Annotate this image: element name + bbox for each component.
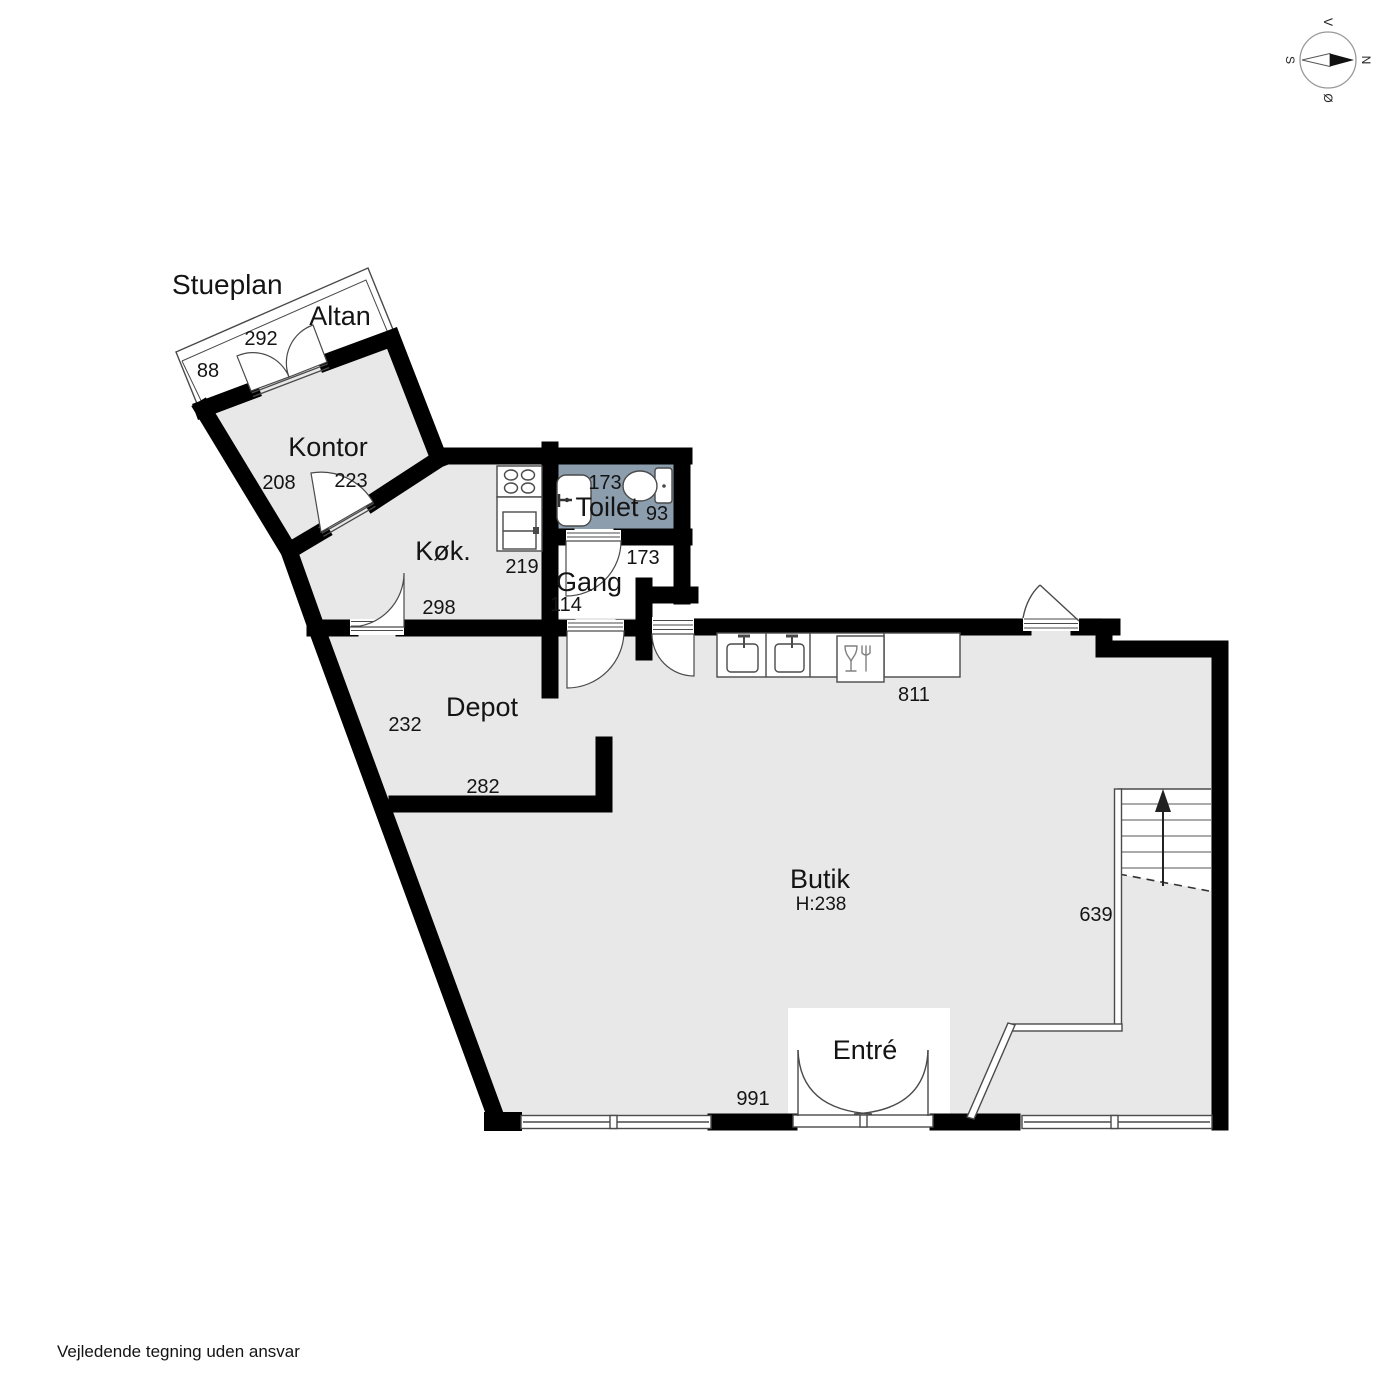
altan-dim-width: 292 xyxy=(244,328,277,350)
kitchen-unit xyxy=(497,497,542,551)
gang-dim-b: 173 xyxy=(626,547,659,569)
kontor-dim-b: 223 xyxy=(334,470,367,492)
kok-label: Køk. xyxy=(415,536,471,566)
altan-label: Altan xyxy=(309,301,371,331)
depot-dim-a: 232 xyxy=(388,714,421,736)
stove xyxy=(497,466,542,497)
depot-label: Depot xyxy=(446,692,519,722)
wc-cistern-button xyxy=(662,484,666,488)
stair-rail xyxy=(1115,789,1122,1030)
butik-label: Butik xyxy=(790,864,851,894)
south-window-left-mullion xyxy=(610,1116,617,1129)
compass-east: Ø xyxy=(1321,93,1335,102)
kontor-label: Kontor xyxy=(288,432,368,462)
altan-dim-depth: 88 xyxy=(197,360,219,382)
north-door-swing xyxy=(1023,585,1040,618)
toilet-dim-b: 93 xyxy=(646,503,668,525)
compass: V N Ø S xyxy=(1283,18,1373,103)
toilet-label: Toilet xyxy=(575,492,639,522)
floorplan-drawing: Stueplan Altan 292 88 Kontor 208 223 Køk… xyxy=(0,0,1400,1400)
compass-south: S xyxy=(1283,56,1297,64)
kok-dim-b: 298 xyxy=(422,597,455,619)
toilet-tap-knob xyxy=(565,498,569,502)
butik-height-note: H:238 xyxy=(796,894,847,915)
toilet-dim-a: 173 xyxy=(588,472,621,494)
kok-dim-a: 219 xyxy=(505,556,538,578)
kontor-dim-a: 208 xyxy=(262,472,295,494)
corner-bottom-left xyxy=(484,1112,522,1131)
floorplan-page: Stueplan Altan 292 88 Kontor 208 223 Køk… xyxy=(0,0,1400,1400)
compass-west: V xyxy=(1321,18,1335,26)
gang-dim-a: 114 xyxy=(550,594,582,616)
butik-dim-b: 639 xyxy=(1079,904,1112,926)
butik-dim-c: 991 xyxy=(736,1088,769,1110)
butik-dim-a: 811 xyxy=(898,684,930,706)
north-door-leaf xyxy=(1040,585,1079,621)
glass-partition-horizontal xyxy=(1010,1024,1122,1031)
south-window-right-mullion xyxy=(1111,1116,1118,1129)
dishwasher xyxy=(837,636,884,682)
gang-label: Gang xyxy=(556,567,622,597)
kitchen-unit-handle xyxy=(533,527,539,534)
entre-threshold-center xyxy=(860,1115,867,1127)
entre-label: Entré xyxy=(833,1035,898,1065)
disclaimer-text: Vejledende tegning uden ansvar xyxy=(57,1342,300,1361)
page-title: Stueplan xyxy=(172,269,283,300)
compass-north: N xyxy=(1359,56,1373,65)
depot-dim-b: 282 xyxy=(466,776,499,798)
